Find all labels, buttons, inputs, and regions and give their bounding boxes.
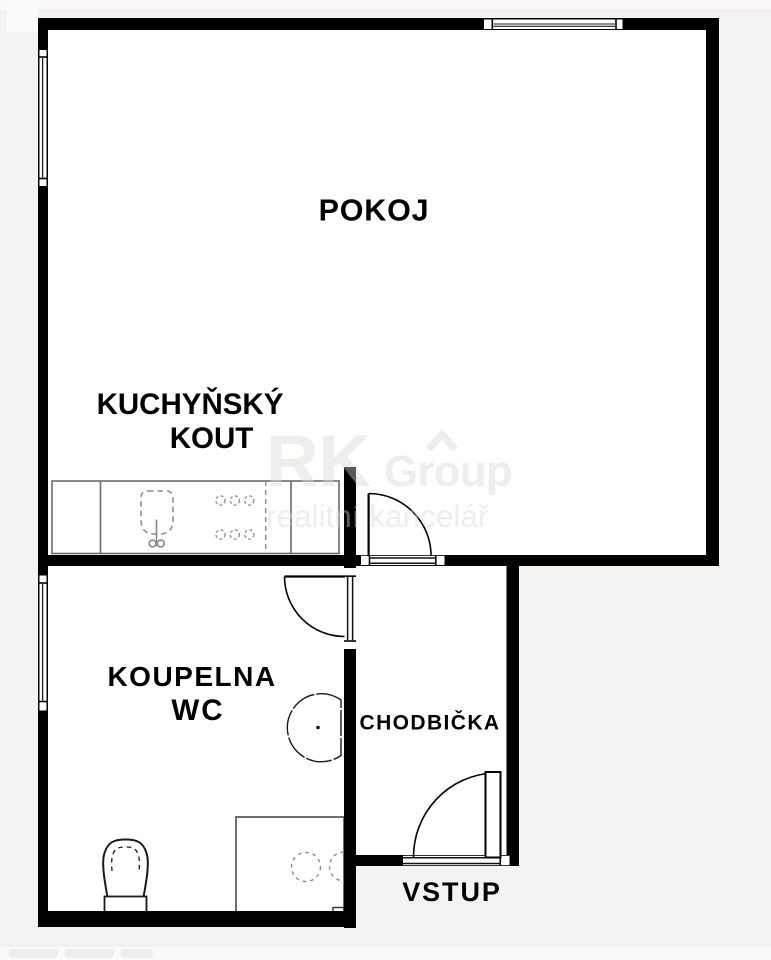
svg-text:realitní kancelář: realitní kancelář bbox=[266, 498, 490, 534]
svg-text:KUCHYŇSKÝ: KUCHYŇSKÝ bbox=[97, 387, 284, 421]
svg-text:POKOJ: POKOJ bbox=[319, 194, 430, 228]
svg-text:VSTUP: VSTUP bbox=[402, 877, 502, 907]
svg-text:KOUPELNA: KOUPELNA bbox=[107, 661, 276, 692]
svg-text:KOUT: KOUT bbox=[170, 422, 254, 455]
svg-text:Group: Group bbox=[384, 448, 512, 496]
svg-text:CHODBIČKA: CHODBIČKA bbox=[360, 711, 501, 735]
svg-text:WC: WC bbox=[171, 694, 224, 727]
svg-text:RK: RK bbox=[266, 421, 371, 502]
